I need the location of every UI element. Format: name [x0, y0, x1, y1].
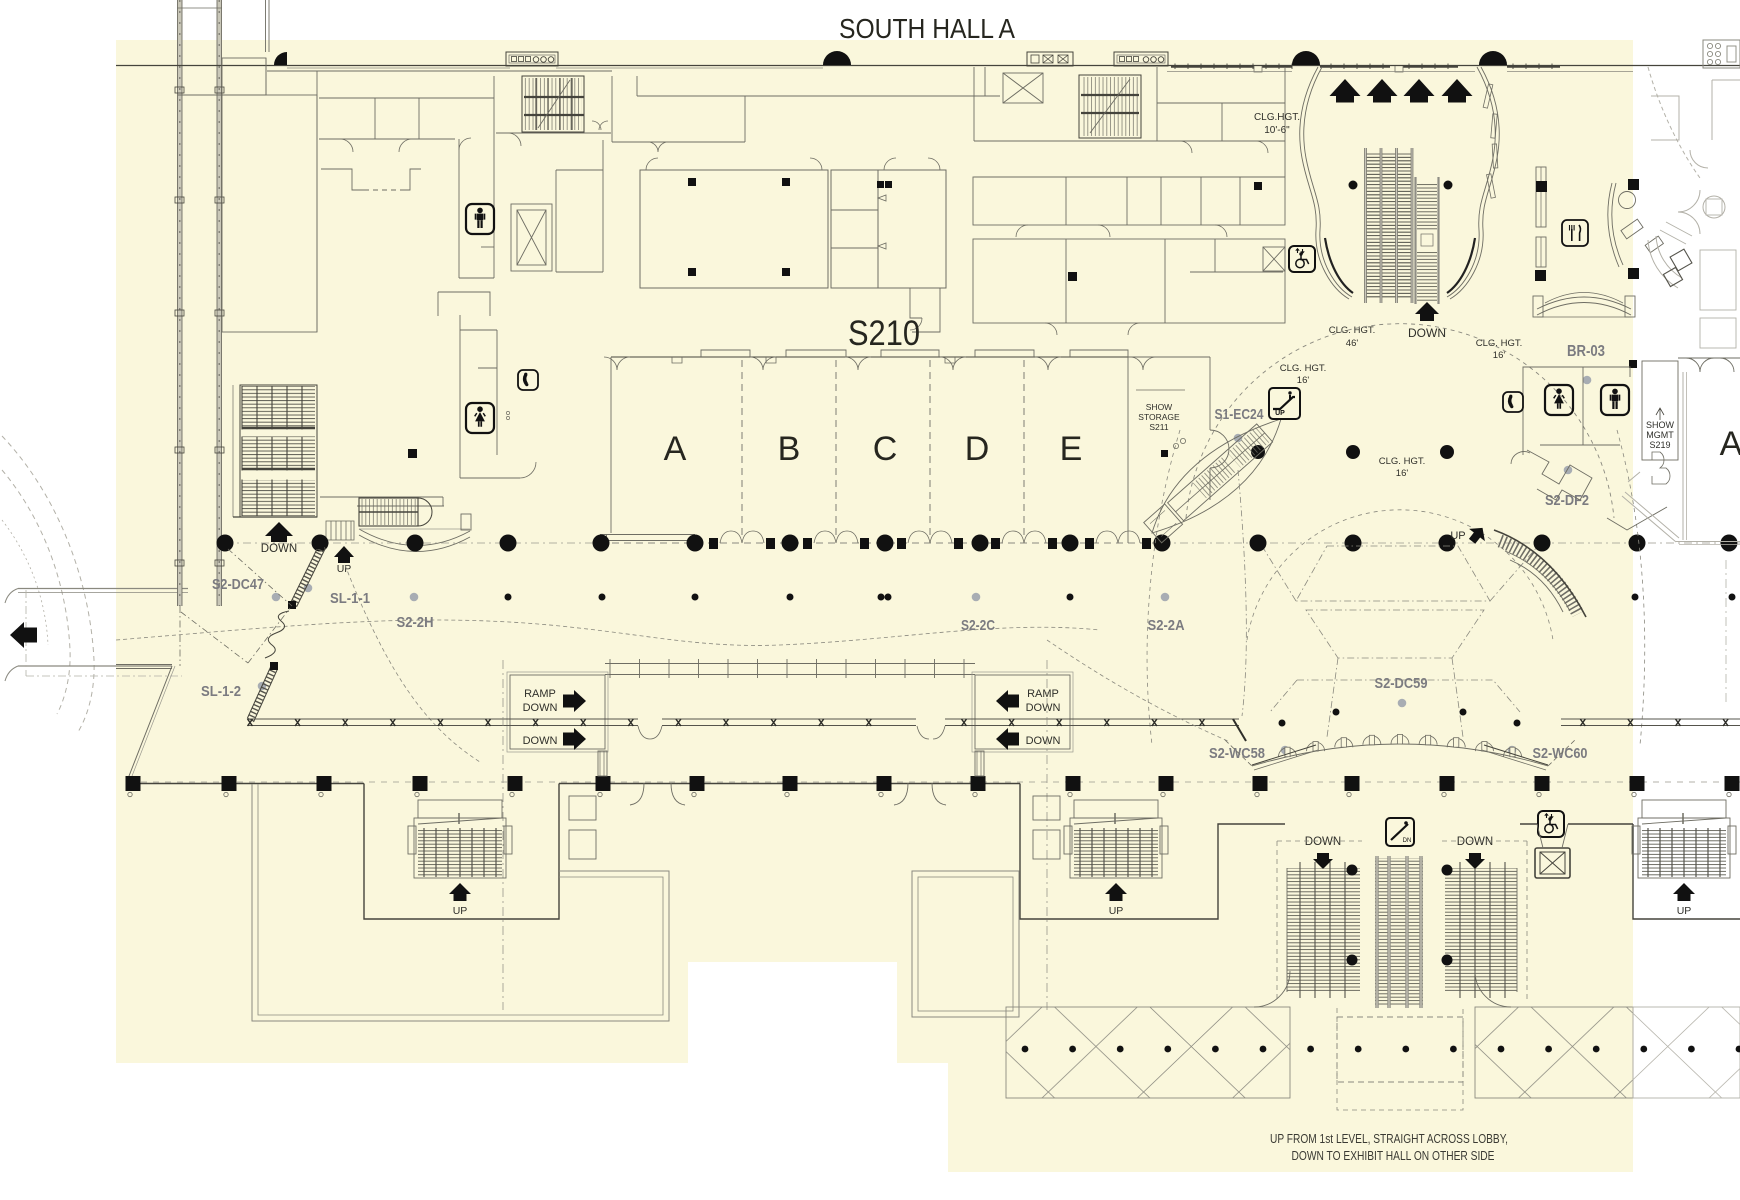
- svg-text:CLG. HGT.: CLG. HGT.: [1329, 325, 1375, 336]
- svg-text:E: E: [1060, 430, 1083, 468]
- svg-text:UP: UP: [1450, 530, 1465, 542]
- svg-text:S2-2C: S2-2C: [961, 617, 995, 634]
- svg-text:RAMP: RAMP: [524, 688, 556, 700]
- svg-text:S2-2H: S2-2H: [397, 614, 434, 631]
- svg-text:UP: UP: [1275, 410, 1285, 417]
- svg-text:S2-WC60: S2-WC60: [1533, 745, 1588, 762]
- svg-text:16': 16': [1396, 468, 1409, 479]
- svg-text:S2-WC58: S2-WC58: [1209, 745, 1265, 762]
- svg-text:DN: DN: [1403, 838, 1412, 844]
- svg-text:DOWN: DOWN: [523, 702, 558, 714]
- svg-text:UP: UP: [337, 563, 352, 575]
- svg-text:DOWN TO EXHIBIT HALL ON OTHER: DOWN TO EXHIBIT HALL ON OTHER SIDE: [1292, 1149, 1495, 1163]
- svg-text:SL-1-1: SL-1-1: [330, 590, 370, 607]
- svg-text:16': 16': [1297, 375, 1310, 386]
- svg-text:RAMP: RAMP: [1027, 688, 1059, 700]
- svg-text:DOWN: DOWN: [1408, 326, 1446, 340]
- svg-text:S1-EC24: S1-EC24: [1215, 406, 1265, 423]
- svg-text:UP: UP: [1109, 905, 1124, 917]
- svg-text:16': 16': [1493, 350, 1506, 361]
- svg-text:CLG. HGT.: CLG. HGT.: [1379, 456, 1425, 467]
- svg-text:SHOW: SHOW: [1146, 402, 1172, 412]
- svg-text:DOWN: DOWN: [1305, 836, 1341, 848]
- svg-text:CLG. HGT.: CLG. HGT.: [1476, 338, 1522, 349]
- svg-text:BR-03: BR-03: [1567, 343, 1605, 360]
- svg-text:B: B: [778, 430, 801, 468]
- svg-text:S210: S210: [848, 314, 920, 353]
- svg-text:DOWN: DOWN: [1026, 702, 1061, 714]
- svg-text:S2-DF2: S2-DF2: [1545, 492, 1589, 509]
- svg-text:DOWN: DOWN: [1457, 836, 1493, 848]
- svg-text:A: A: [664, 430, 687, 468]
- svg-text:S2-2A: S2-2A: [1148, 617, 1185, 634]
- svg-text:CLG. HGT.: CLG. HGT.: [1280, 363, 1326, 374]
- svg-text:SHOW: SHOW: [1646, 420, 1675, 430]
- svg-text:UP: UP: [1677, 905, 1692, 917]
- svg-text:UP FROM 1st LEVEL, STRAIGHT AC: UP FROM 1st LEVEL, STRAIGHT ACROSS LOBBY…: [1270, 1132, 1508, 1146]
- svg-text:MGMT: MGMT: [1646, 430, 1674, 440]
- svg-text:UP: UP: [453, 905, 468, 917]
- svg-text:46': 46': [1346, 338, 1359, 349]
- svg-text:STORAGE: STORAGE: [1138, 412, 1180, 422]
- svg-text:SL-1-2: SL-1-2: [201, 683, 241, 700]
- svg-text:C: C: [873, 430, 898, 468]
- svg-text:D: D: [965, 430, 990, 468]
- svg-text:DOWN: DOWN: [523, 735, 558, 747]
- svg-text:S2-DC59: S2-DC59: [1375, 675, 1428, 692]
- svg-text:S211: S211: [1149, 422, 1168, 432]
- svg-text:DOWN: DOWN: [1026, 735, 1061, 747]
- svg-text:SOUTH HALL A: SOUTH HALL A: [839, 13, 1015, 44]
- svg-text:A: A: [1720, 425, 1740, 463]
- svg-text:DOWN: DOWN: [261, 543, 297, 555]
- svg-text:S2-DC47: S2-DC47: [212, 576, 264, 593]
- svg-text:S219: S219: [1649, 440, 1670, 450]
- svg-text:CLG.HGT.: CLG.HGT.: [1254, 112, 1300, 123]
- svg-text:10'-6": 10'-6": [1264, 125, 1290, 136]
